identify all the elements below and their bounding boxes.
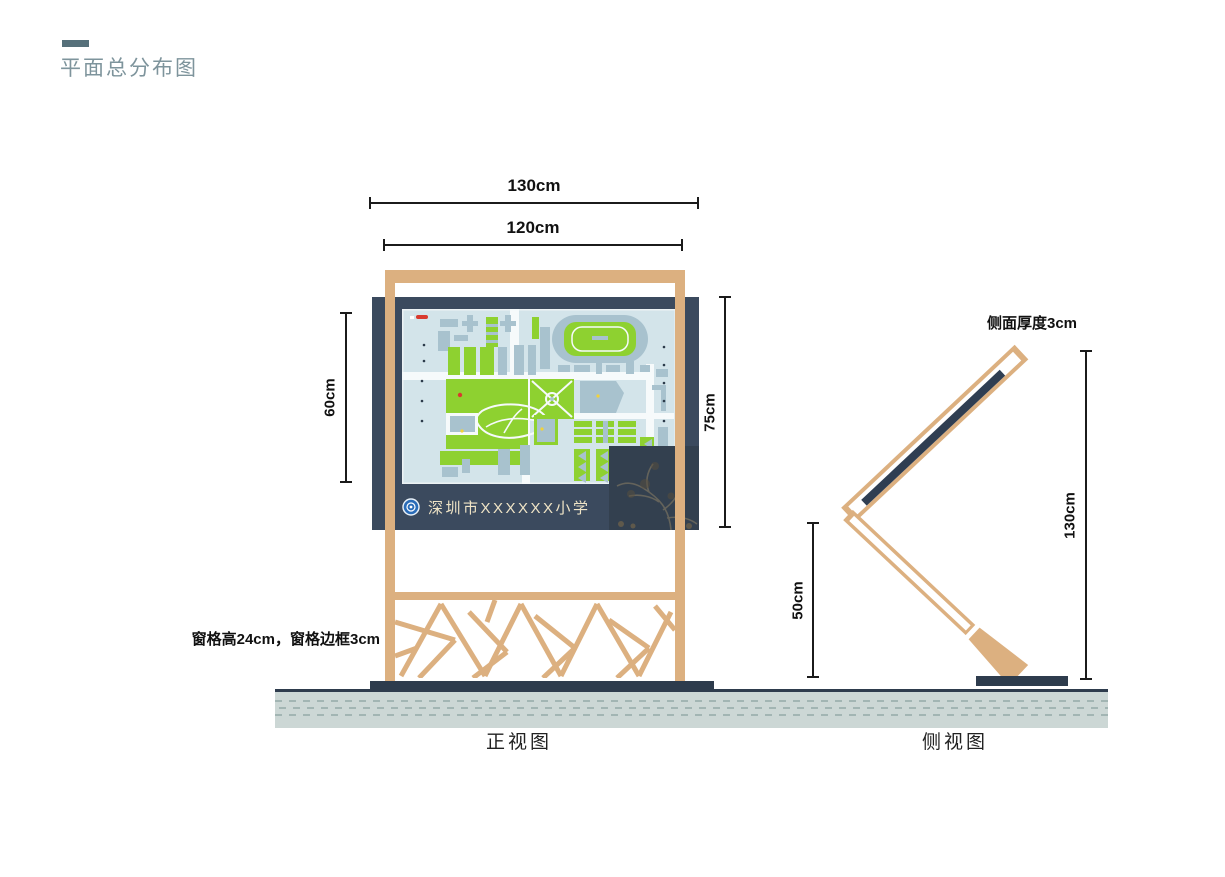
school-name-row: 深圳市XXXXXX小学 — [402, 497, 591, 517]
front-view-caption: 正视图 — [459, 727, 579, 754]
side-lower-arm — [838, 505, 1028, 686]
lattice-note: 窗格高24cm，窗格边框3cm — [150, 628, 380, 649]
side-upper-arm — [841, 345, 1028, 523]
frame-left-post — [385, 270, 395, 683]
frame-right-post — [675, 270, 685, 683]
page-title: 平面总分布图 — [60, 52, 198, 82]
dim-frame-width-line — [383, 244, 683, 246]
map-green-grid — [574, 421, 636, 443]
side-profile — [830, 340, 1090, 690]
school-name: 深圳市XXXXXX小学 — [428, 497, 591, 518]
dim-panel-height-label: 75cm — [702, 383, 719, 443]
dim-frame-width-label: 120cm — [433, 218, 633, 238]
dim-clearance-line — [812, 522, 814, 678]
sign-panel: 深圳市XXXXXX小学 — [372, 297, 699, 530]
dim-total-width-line — [369, 202, 699, 204]
frame-top-rail — [385, 270, 685, 283]
side-view-caption: 侧视图 — [895, 727, 1015, 754]
dim-side-height-line — [1085, 350, 1087, 680]
tree-decoration-icon — [609, 446, 699, 530]
dim-map-height-line — [345, 312, 347, 483]
drawing-sheet: 平面总分布图 130cm 120cm 60cm 75cm — [0, 0, 1225, 877]
dim-side-height-label: 130cm — [1062, 481, 1079, 551]
dim-clearance-label: 50cm — [790, 571, 807, 631]
ground-hatch-band — [275, 692, 1108, 728]
dim-map-height-label: 60cm — [322, 368, 339, 428]
lattice-panel — [395, 592, 675, 678]
side-thickness-note: 侧面厚度3cm — [947, 312, 1117, 333]
dim-panel-height-line — [724, 296, 726, 528]
map-you-are-here-dot — [458, 393, 462, 397]
title-accent-dash — [62, 40, 89, 47]
school-logo-icon — [402, 498, 420, 516]
side-base-plate — [976, 676, 1068, 686]
dim-total-width-label: 130cm — [434, 176, 634, 196]
